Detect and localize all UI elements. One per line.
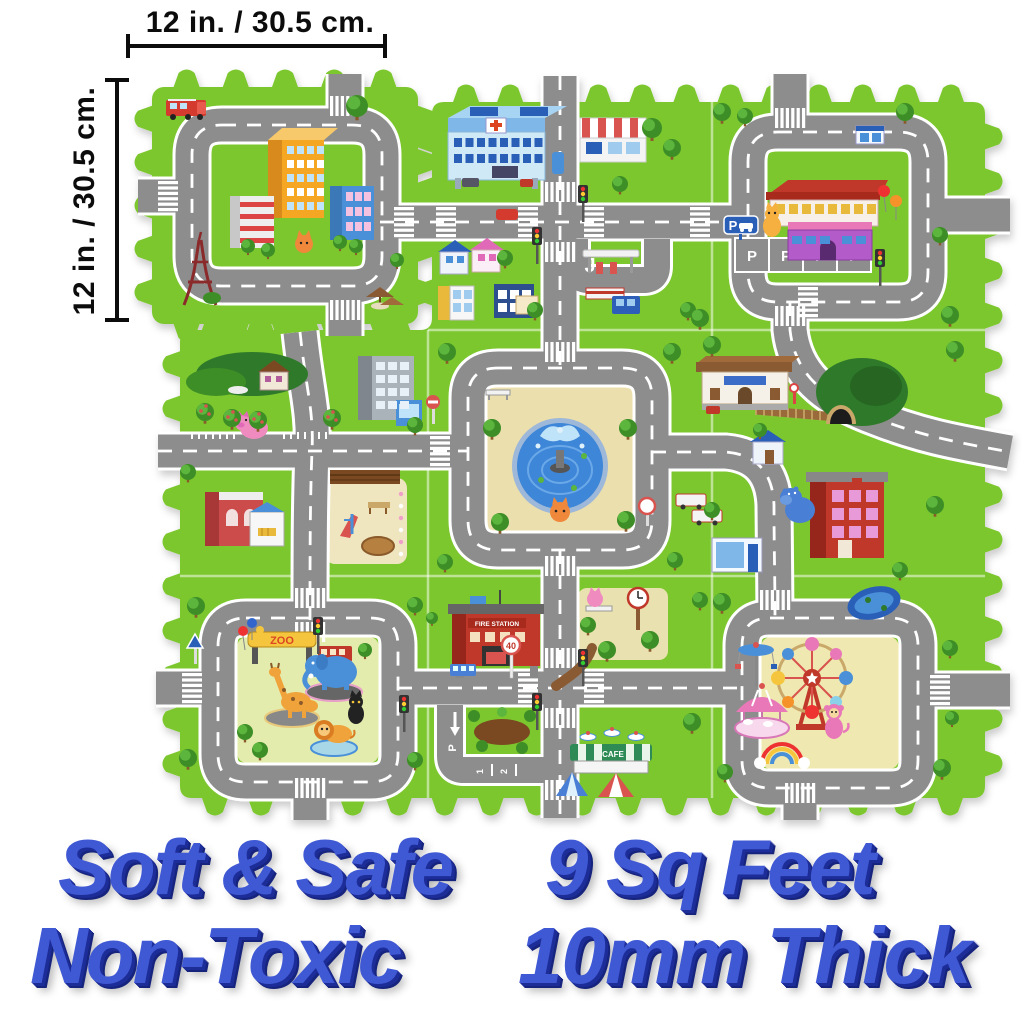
left-dimension-label: 12 in. / 30.5 cm. xyxy=(68,51,104,351)
lane-number: 2 xyxy=(499,769,509,774)
cafe-sign-label: CAFE xyxy=(602,750,624,759)
bush-icon xyxy=(203,292,221,304)
marketing-thickness: 10mm Thick xyxy=(518,916,970,996)
station-icon xyxy=(696,356,800,414)
shop-icon xyxy=(856,126,884,144)
speed-limit-label: 40 xyxy=(506,641,516,651)
product-photo: J P P P P P 1 2 xyxy=(0,0,1028,1028)
striped-market-icon xyxy=(580,118,646,162)
marketing-non-toxic: Non-Toxic xyxy=(30,916,400,996)
fire-station-sign-label: FIRE STATION xyxy=(475,621,519,628)
fountain-icon xyxy=(512,418,608,514)
top-dimension-label: 12 in. / 30.5 cm. xyxy=(115,6,405,40)
marketing-sq-feet: 9 Sq Feet xyxy=(545,828,874,906)
fire-truck-icon xyxy=(166,100,206,120)
parking-sign-label: P xyxy=(729,218,738,233)
glass-building-icon xyxy=(712,538,762,572)
marketing-soft-safe: Soft & Safe xyxy=(58,828,452,906)
lot-p-marking: P xyxy=(447,744,459,751)
car-icon xyxy=(496,209,518,220)
play-mat: J P P P P P 1 2 xyxy=(135,70,1011,821)
stall-letter: P xyxy=(747,248,757,265)
zoo-sign-label: ZOO xyxy=(270,635,294,647)
car-icon xyxy=(552,152,564,174)
tunnel-icon xyxy=(816,358,908,426)
lane-number: 1 xyxy=(475,769,485,774)
